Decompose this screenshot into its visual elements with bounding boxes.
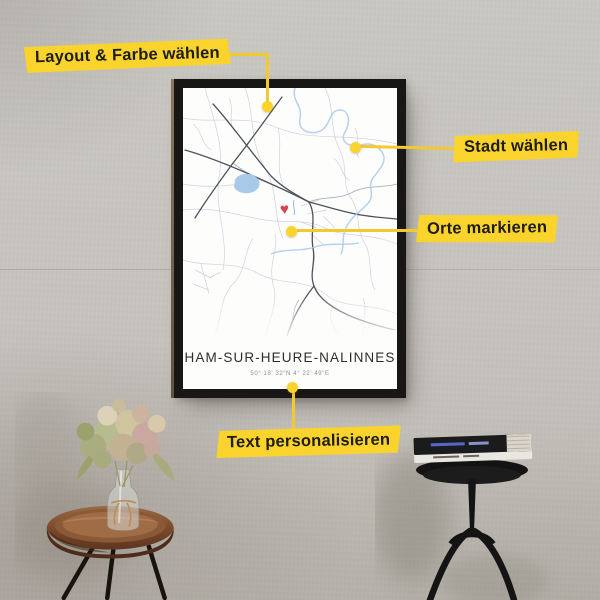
map-bottom-fade <box>183 294 397 340</box>
callout-city[interactable]: Stadt wählen <box>453 131 580 163</box>
book-stack <box>413 434 532 463</box>
poster-coordinates: 50° 18' 32"N 4° 22' 49"E <box>183 371 397 377</box>
poster-city-title: HAM-SUR-HEURE-NALINNES <box>183 350 397 365</box>
stool-leg-shadow <box>443 554 547 600</box>
connector-line-places <box>297 229 419 232</box>
side-table <box>15 392 255 600</box>
callout-personalize-text[interactable]: Text personalisieren <box>216 425 402 458</box>
city-map-print <box>183 88 397 340</box>
connector-dot-layout <box>262 101 273 112</box>
map-poster-frame: HAM-SUR-HEURE-NALINNES 50° 18' 32"N 4° 2… <box>174 79 406 398</box>
scene: HAM-SUR-HEURE-NALINNES 50° 18' 32"N 4° 2… <box>0 0 600 600</box>
connector-dot-places <box>286 226 297 237</box>
callout-layout-color[interactable]: Layout & Farbe wählen <box>24 38 231 73</box>
callout-places[interactable]: Orte markieren <box>416 213 559 244</box>
vase <box>107 459 139 530</box>
connector-dot-city <box>350 142 361 153</box>
connector-line-text <box>292 388 295 430</box>
stool <box>375 412 565 600</box>
heart-marker-icon: ♥ <box>279 202 289 218</box>
connector-line-layout-v <box>266 54 269 104</box>
droop-leaf <box>153 453 175 481</box>
frame-wood-edge <box>171 79 174 398</box>
connector-dot-text <box>287 382 298 393</box>
lake <box>234 174 260 193</box>
